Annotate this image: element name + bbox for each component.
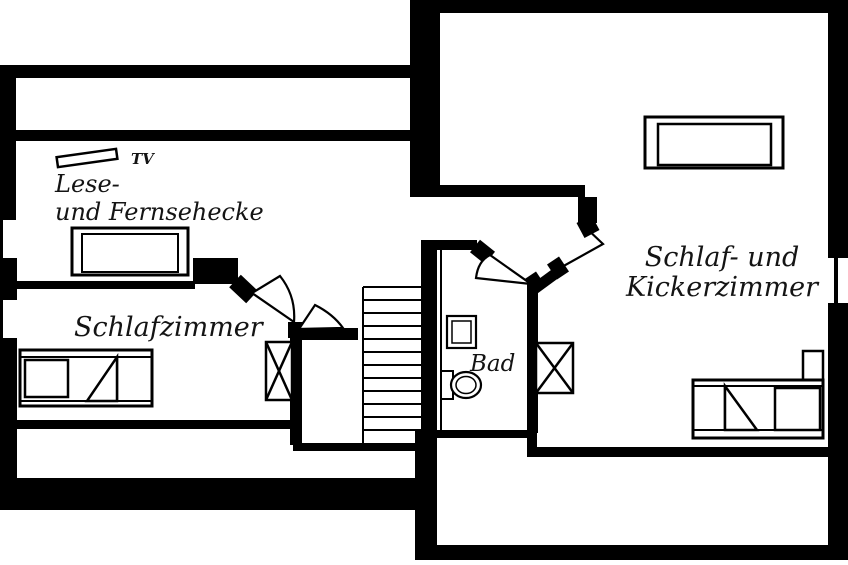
shaft-box-left xyxy=(266,342,292,400)
room-label-schlafzimmer: Schlafzimmer xyxy=(74,312,265,343)
pillow xyxy=(775,388,820,430)
shaft-box-right xyxy=(536,343,573,393)
stairs xyxy=(363,287,421,443)
tv-unit xyxy=(57,149,118,167)
sink xyxy=(447,316,476,348)
pillow xyxy=(25,360,68,397)
window-left-1 xyxy=(0,220,3,258)
tv-label: TV xyxy=(131,150,155,168)
room-label-kicker-line2: Kickerzimmer xyxy=(625,272,820,303)
sofa xyxy=(72,228,188,275)
bed-schlafzimmer xyxy=(20,350,152,406)
door-swing-schlafzimmer-2 xyxy=(299,305,343,329)
bed-kickerzimmer-top xyxy=(645,117,783,168)
window-right xyxy=(834,258,838,303)
nightstand xyxy=(803,351,823,380)
room-label-lese-line2: und Fernsehecke xyxy=(55,198,264,226)
door-swing-bad xyxy=(476,255,531,284)
window-left-2 xyxy=(0,300,3,338)
room-label-bad: Bad xyxy=(469,351,515,377)
room-label-lese-line1: Lese- xyxy=(54,170,120,198)
bed-kickerzimmer-bottom xyxy=(693,351,823,438)
floor-plan: TV Lese- und Fernsehecke Schlafzimmer Ba… xyxy=(0,0,848,565)
room-label-kicker-line1: Schlaf- und xyxy=(645,242,800,273)
floor-plan-page: TV Lese- und Fernsehecke Schlafzimmer Ba… xyxy=(0,0,848,565)
